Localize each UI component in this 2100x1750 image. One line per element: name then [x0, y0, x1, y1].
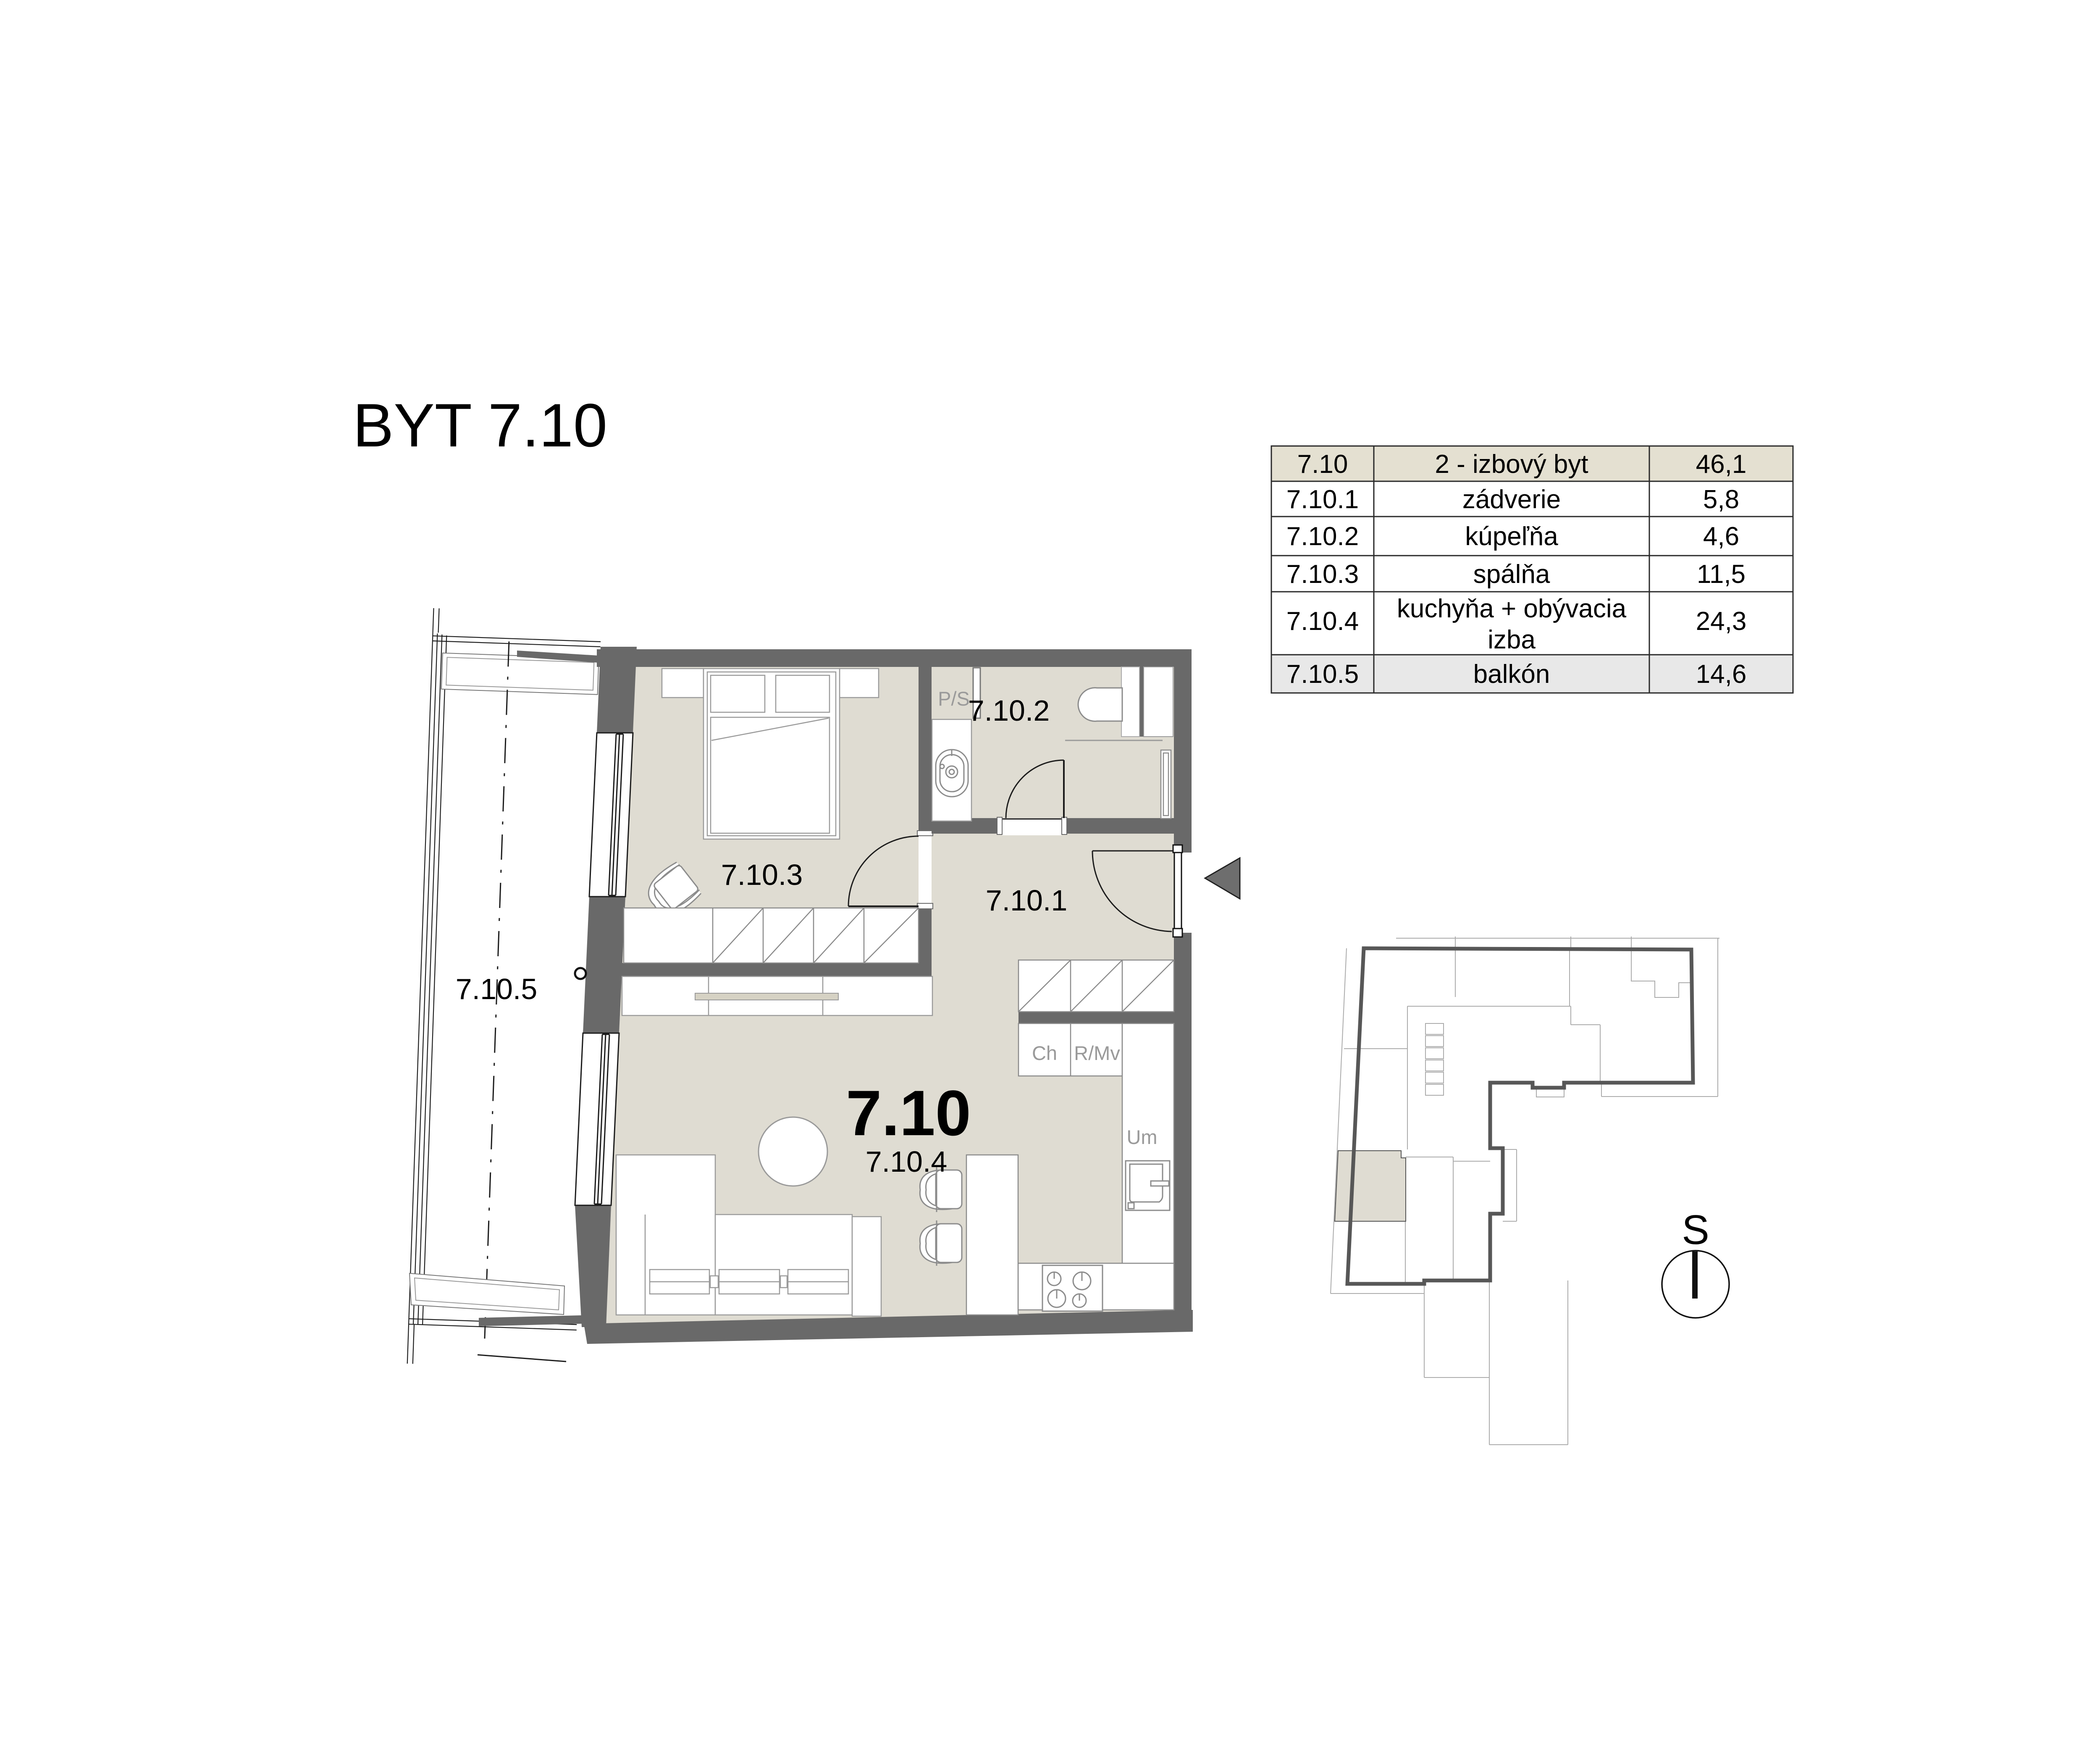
svg-text:R/Mv: R/Mv — [1074, 1042, 1120, 1064]
svg-text:46,1: 46,1 — [1696, 450, 1747, 479]
svg-text:P/S: P/S — [938, 687, 970, 710]
svg-text:7.10: 7.10 — [846, 1077, 971, 1149]
svg-text:kuchyňa + obývacia: kuchyňa + obývacia — [1397, 594, 1627, 623]
svg-text:7.10.5: 7.10.5 — [456, 973, 538, 1005]
svg-text:7.10.1: 7.10.1 — [1286, 485, 1359, 514]
svg-text:7.10: 7.10 — [1297, 450, 1348, 479]
svg-text:7.10.5: 7.10.5 — [1286, 660, 1359, 689]
svg-text:balkón: balkón — [1473, 660, 1550, 689]
svg-text:zádverie: zádverie — [1462, 485, 1561, 514]
svg-text:7.10.1: 7.10.1 — [986, 884, 1068, 917]
svg-text:7.10.2: 7.10.2 — [1286, 522, 1359, 551]
svg-text:7.10.3: 7.10.3 — [1286, 560, 1359, 589]
svg-text:7.10.2: 7.10.2 — [968, 694, 1050, 727]
svg-text:14,6: 14,6 — [1696, 660, 1747, 689]
svg-text:BYT 7.10: BYT 7.10 — [353, 391, 607, 459]
svg-text:izba: izba — [1488, 625, 1536, 654]
svg-text:7.10.4: 7.10.4 — [866, 1145, 948, 1178]
svg-text:2 - izbový byt: 2 - izbový byt — [1435, 450, 1588, 479]
svg-text:Um: Um — [1126, 1126, 1157, 1148]
svg-text:5,8: 5,8 — [1703, 485, 1739, 514]
svg-text:7.10.4: 7.10.4 — [1286, 607, 1359, 636]
svg-text:Ch: Ch — [1032, 1042, 1057, 1064]
svg-text:kúpeľňa: kúpeľňa — [1465, 522, 1558, 551]
svg-text:spálňa: spálňa — [1473, 560, 1550, 589]
svg-text:24,3: 24,3 — [1696, 607, 1747, 636]
svg-text:11,5: 11,5 — [1697, 560, 1746, 589]
svg-text:S: S — [1682, 1207, 1709, 1253]
svg-text:7.10.3: 7.10.3 — [721, 858, 803, 891]
svg-text:4,6: 4,6 — [1703, 522, 1739, 551]
